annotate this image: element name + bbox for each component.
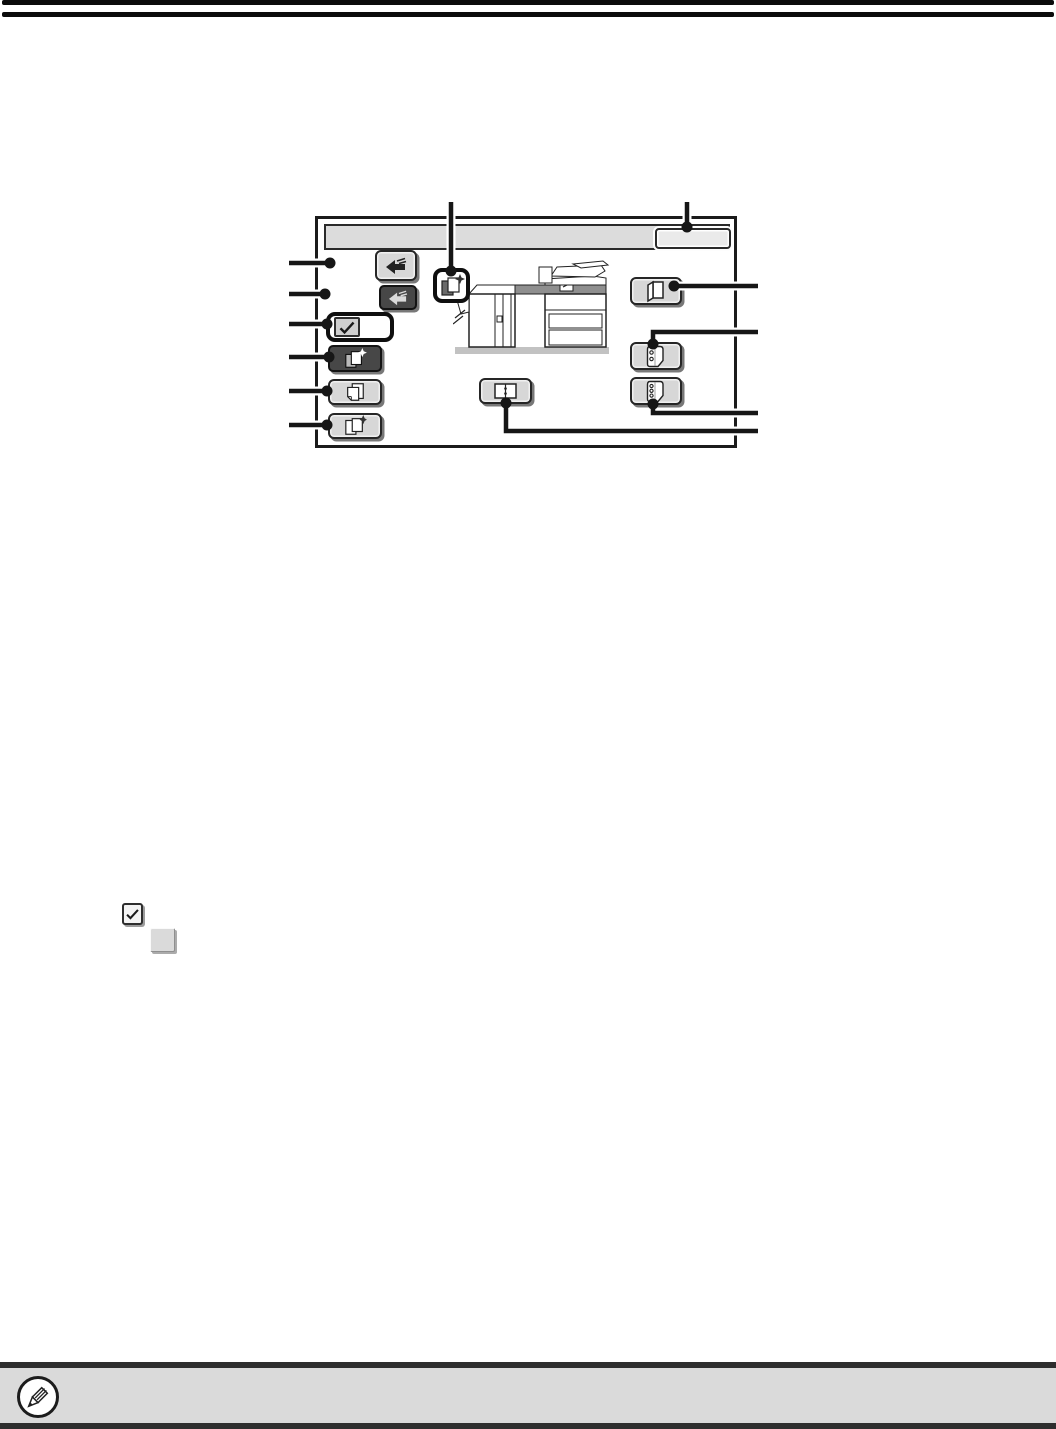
arrow-left-icon xyxy=(384,256,408,276)
sheet-three-holes-icon xyxy=(646,380,666,403)
open-book-icon xyxy=(493,381,518,401)
note-bar-bottom-border xyxy=(0,1423,1056,1429)
two-pages-key[interactable] xyxy=(328,379,382,405)
inline-checked-key xyxy=(122,903,143,925)
callout-lines xyxy=(0,0,1056,1429)
folded-sheet-key[interactable] xyxy=(630,277,682,305)
screen-header-bar xyxy=(324,224,730,250)
open-book-key[interactable] xyxy=(479,378,532,404)
checkmark-icon xyxy=(125,907,140,921)
upper-arrow-key[interactable] xyxy=(375,250,417,281)
manual-page xyxy=(0,0,1056,1429)
top-rule-1 xyxy=(2,0,1054,5)
copier-illustration xyxy=(453,254,611,358)
page-star-key[interactable] xyxy=(328,413,382,439)
arrow-left-icon xyxy=(386,289,410,307)
top-rule-2 xyxy=(2,12,1054,17)
header-blank-key[interactable] xyxy=(655,228,731,249)
pages-star-key[interactable] xyxy=(328,345,382,372)
checkmark-icon xyxy=(338,320,356,335)
copier-shadow xyxy=(455,347,609,354)
two-pages-icon xyxy=(343,381,367,403)
touch-panel-screen xyxy=(315,216,737,448)
two-hole-sheet-key[interactable] xyxy=(630,342,682,370)
page-with-star-icon xyxy=(342,415,368,437)
check-square xyxy=(334,317,360,337)
pencil-glyph xyxy=(24,1383,52,1411)
sheet-two-holes-icon xyxy=(646,345,666,368)
framed-check-key[interactable] xyxy=(326,312,394,342)
pages-with-star-icon xyxy=(342,348,368,370)
framed-pages-with-star-icon xyxy=(433,268,470,303)
lower-arrow-key[interactable] xyxy=(379,285,417,310)
pencil-icon xyxy=(17,1376,59,1418)
folded-sheet-icon xyxy=(645,279,667,303)
three-hole-sheet-key[interactable] xyxy=(630,377,682,405)
note-bar xyxy=(0,1368,1056,1423)
pages-with-star-icon xyxy=(439,274,465,298)
inline-blank-key xyxy=(150,928,175,952)
